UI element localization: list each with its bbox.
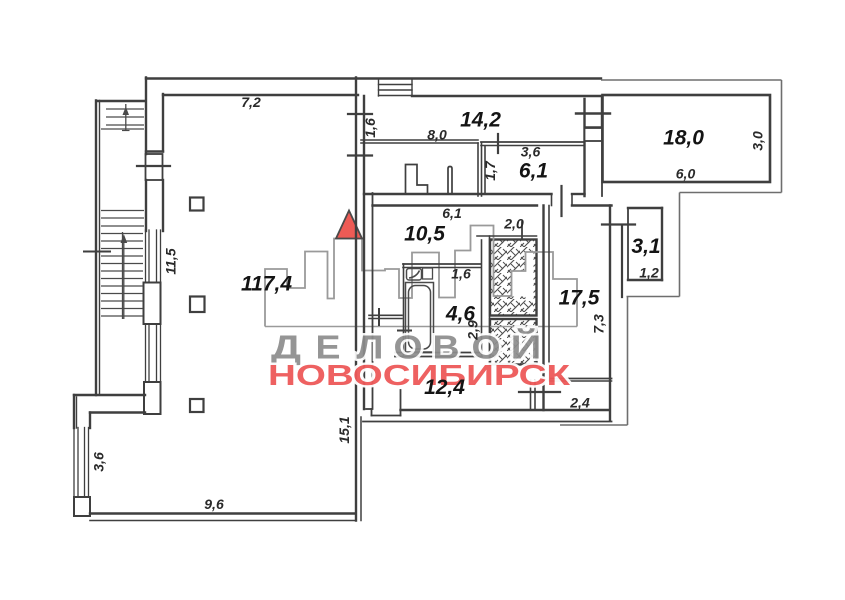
svg-text:НОВОСИБИРСК: НОВОСИБИРСК bbox=[268, 360, 570, 392]
svg-text:3,1: 3,1 bbox=[631, 235, 660, 258]
svg-text:1,6: 1,6 bbox=[362, 118, 378, 138]
svg-text:7,2: 7,2 bbox=[241, 94, 261, 110]
svg-text:8,0: 8,0 bbox=[427, 127, 447, 143]
svg-text:17,5: 17,5 bbox=[559, 287, 600, 310]
svg-text:2,4: 2,4 bbox=[569, 395, 590, 411]
svg-text:117,4: 117,4 bbox=[241, 273, 292, 296]
svg-text:3,6: 3,6 bbox=[521, 144, 541, 160]
svg-text:9,6: 9,6 bbox=[204, 496, 224, 512]
svg-text:6,0: 6,0 bbox=[676, 166, 696, 182]
svg-text:10,5: 10,5 bbox=[404, 223, 445, 246]
svg-text:12,4: 12,4 bbox=[424, 376, 465, 399]
svg-text:11,5: 11,5 bbox=[163, 248, 179, 274]
svg-text:1,6: 1,6 bbox=[451, 266, 471, 282]
svg-text:14,2: 14,2 bbox=[460, 109, 501, 132]
svg-text:6,1: 6,1 bbox=[519, 160, 548, 183]
svg-text:18,0: 18,0 bbox=[663, 127, 704, 150]
svg-text:2,9: 2,9 bbox=[465, 320, 481, 341]
svg-text:7,3: 7,3 bbox=[591, 314, 607, 334]
svg-text:15,1: 15,1 bbox=[336, 416, 352, 443]
svg-text:2,0: 2,0 bbox=[503, 216, 524, 232]
svg-text:6,1: 6,1 bbox=[442, 205, 462, 221]
svg-text:1,7: 1,7 bbox=[482, 160, 498, 181]
svg-text:3,0: 3,0 bbox=[750, 131, 766, 151]
svg-text:3,6: 3,6 bbox=[91, 452, 107, 472]
svg-text:1,2: 1,2 bbox=[639, 265, 659, 281]
